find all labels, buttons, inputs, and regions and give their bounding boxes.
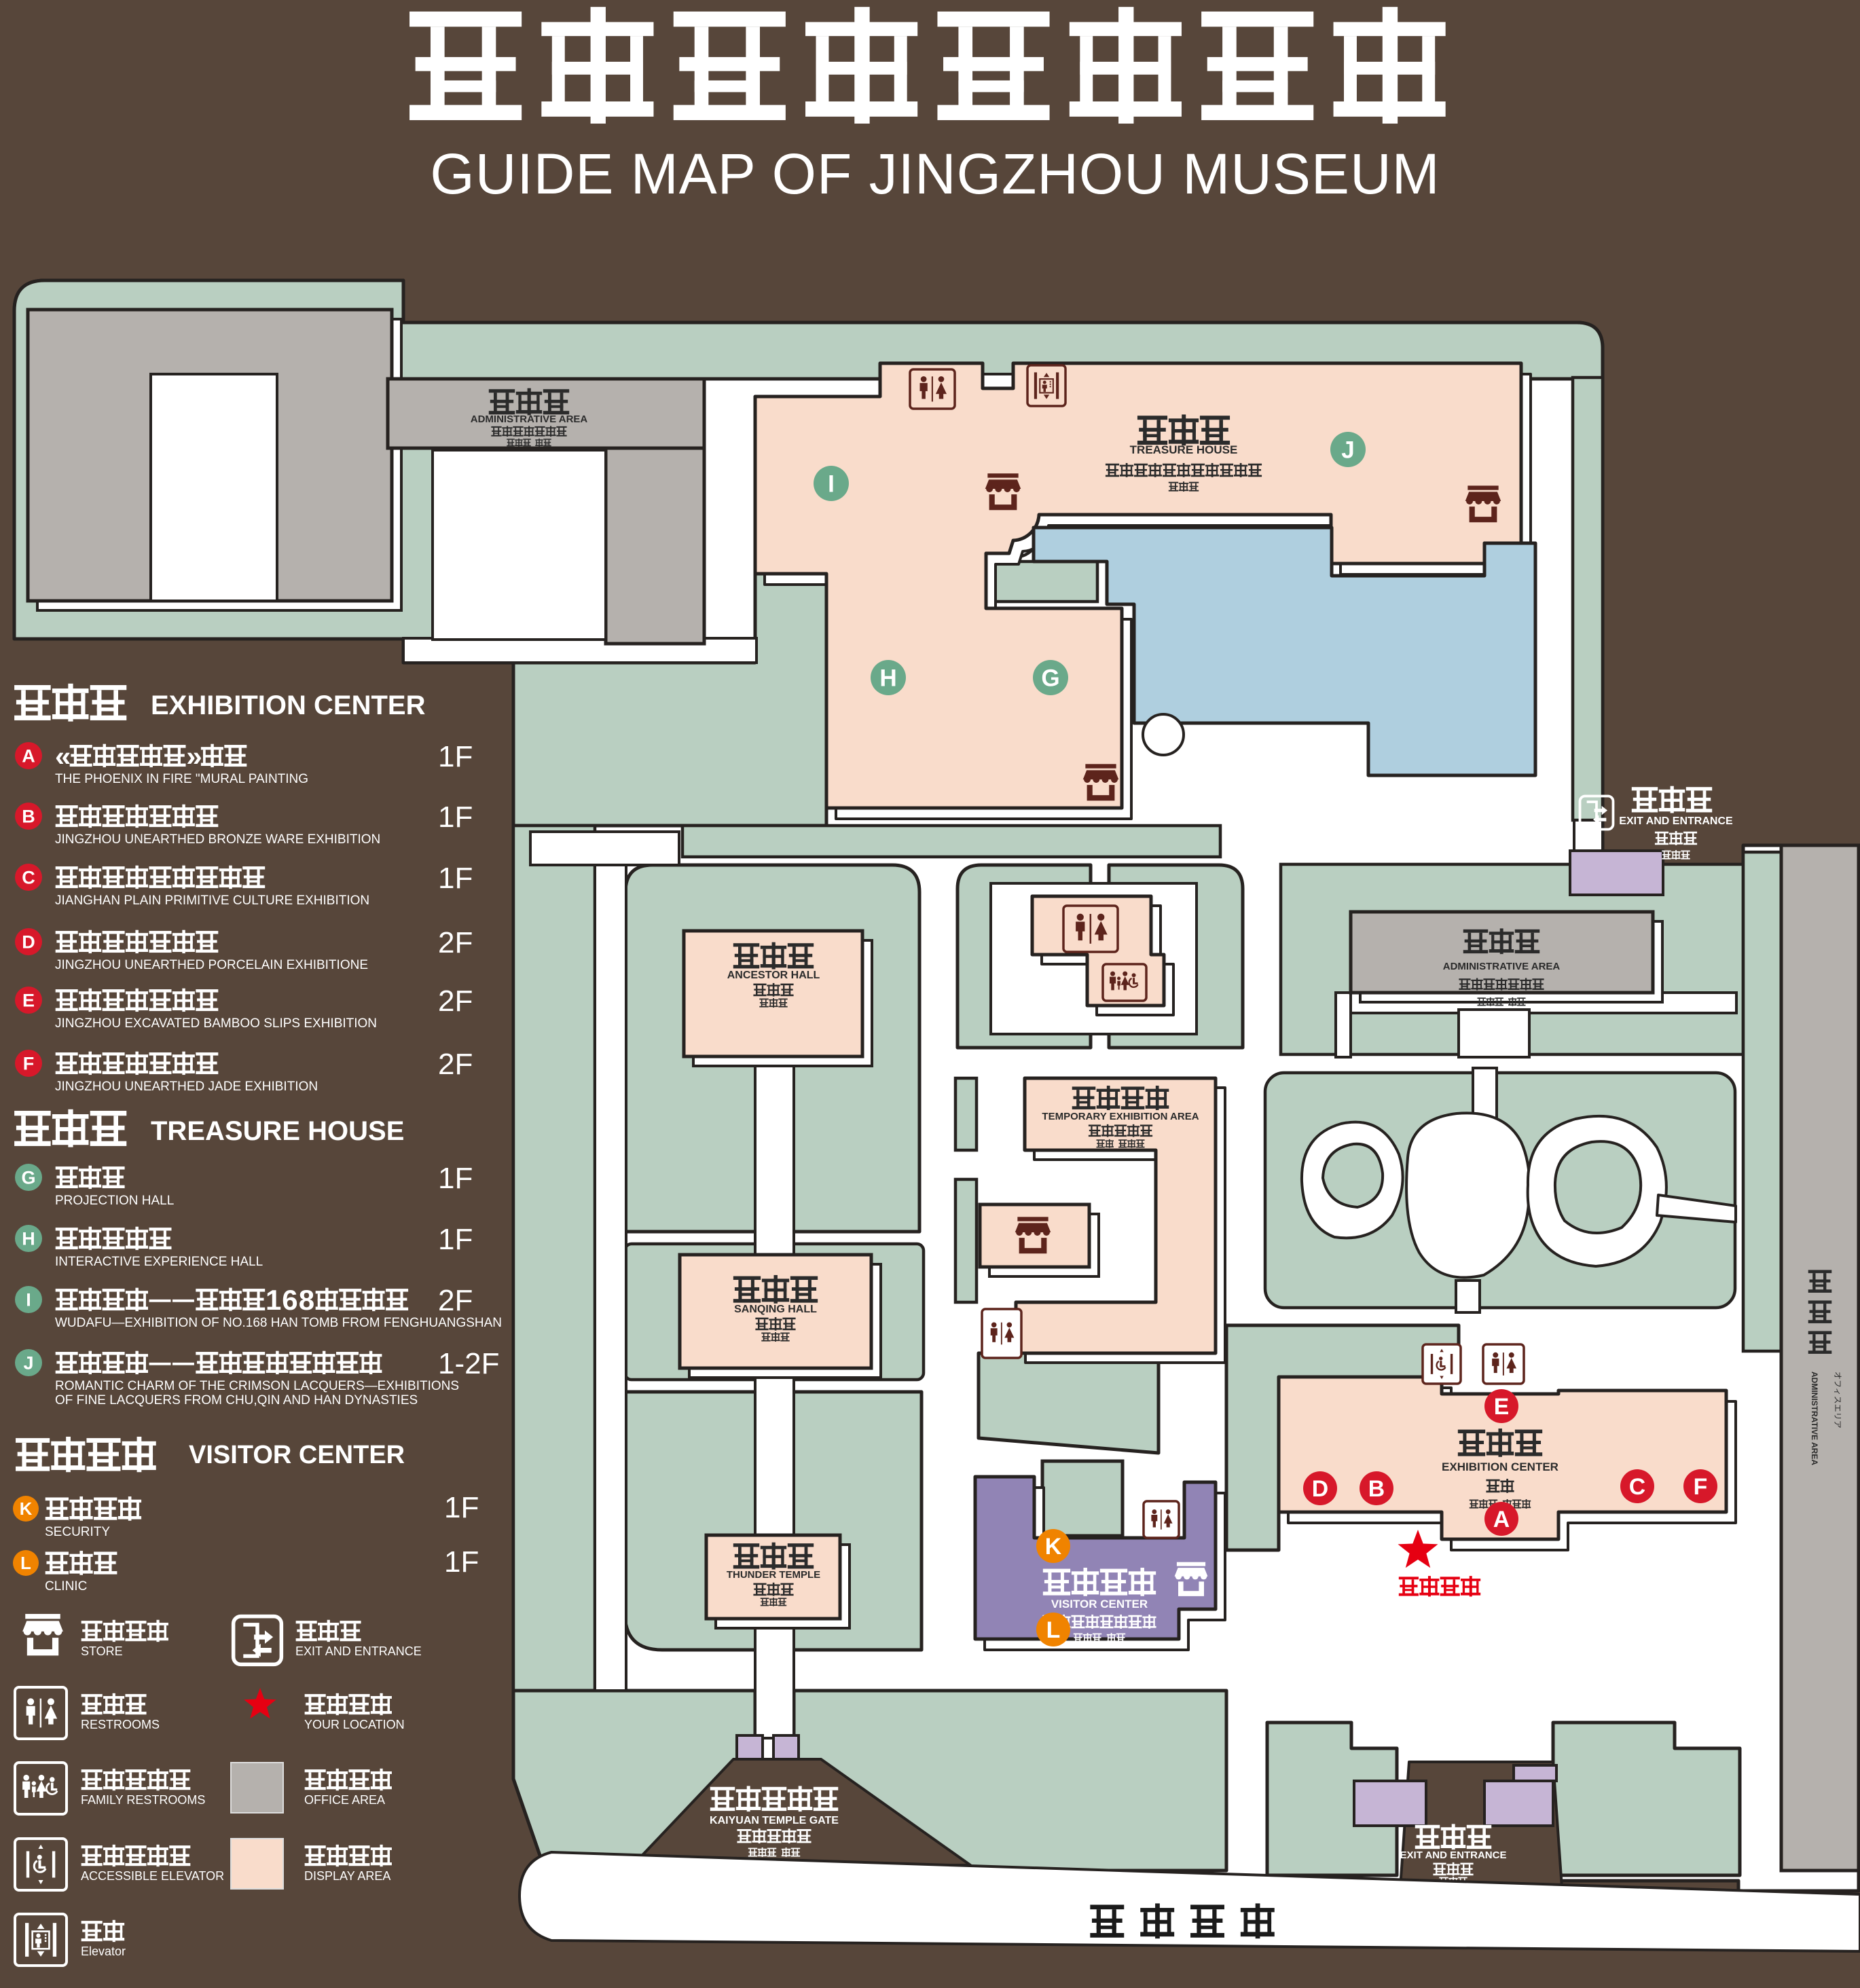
svg-text:C: C <box>22 868 35 888</box>
svg-text:JIANGHAN PLAIN PRIMITIVE CULTU: JIANGHAN PLAIN PRIMITIVE CULTURE EXHIBIT… <box>55 894 369 908</box>
svg-text:K: K <box>1045 1534 1062 1560</box>
svg-text:L: L <box>20 1554 31 1573</box>
svg-text:OF FINE LACQUERS FROM CHU,QIN: OF FINE LACQUERS FROM CHU,QIN AND HAN DY… <box>55 1393 418 1407</box>
svg-text:PROJECTION HALL: PROJECTION HALL <box>55 1194 174 1208</box>
svg-text:SECURITY: SECURITY <box>45 1525 110 1539</box>
svg-text:2F: 2F <box>438 1048 473 1081</box>
svg-text:D: D <box>22 932 35 953</box>
svg-text:JINGZHOU UNEARTHED JADE EXHIBI: JINGZHOU UNEARTHED JADE EXHIBITION <box>55 1080 318 1094</box>
svg-text:G: G <box>1041 665 1059 692</box>
svg-text:1F: 1F <box>444 1545 479 1579</box>
svg-text:VISITOR CENTER: VISITOR CENTER <box>189 1441 405 1469</box>
svg-text:GUIDE MAP OF JINGZHOU MUSEUM: GUIDE MAP OF JINGZHOU MUSEUM <box>430 142 1440 206</box>
svg-text:STORE: STORE <box>81 1644 123 1658</box>
svg-text:OFFICE AREA: OFFICE AREA <box>304 1793 385 1807</box>
svg-text:VISITOR CENTER: VISITOR CENTER <box>1051 1598 1148 1610</box>
svg-text:1F: 1F <box>438 862 473 895</box>
svg-text:JINGZHOU EXCAVATED BAMBOO SLIP: JINGZHOU EXCAVATED BAMBOO SLIPS EXHIBITI… <box>55 1016 377 1031</box>
svg-text:J: J <box>1341 437 1355 464</box>
svg-text:E: E <box>22 991 35 1011</box>
svg-text:1F: 1F <box>438 740 473 773</box>
svg-text:J: J <box>23 1353 33 1374</box>
svg-text:JINGZHOU UNEARTHED PORCELAIN E: JINGZHOU UNEARTHED PORCELAIN EXHIBITIONE <box>55 958 368 972</box>
svg-text:FAMILY RESTROOMS: FAMILY RESTROOMS <box>81 1793 205 1807</box>
svg-text:ADMINISTRATIVE AREA: ADMINISTRATIVE AREA <box>1810 1372 1819 1465</box>
svg-text:JINGZHOU UNEARTHED BRONZE WARE: JINGZHOU UNEARTHED BRONZE WARE EXHIBITIO… <box>55 832 380 847</box>
svg-text:6: 6 <box>282 1284 297 1316</box>
svg-text:ACCESSIBLE ELEVATOR: ACCESSIBLE ELEVATOR <box>81 1869 224 1883</box>
svg-text:1F: 1F <box>438 1162 473 1195</box>
svg-text:K: K <box>20 1500 33 1519</box>
svg-text:1F: 1F <box>444 1491 479 1524</box>
svg-text:G: G <box>21 1168 35 1188</box>
svg-text:WUDAFU—EXHIBITION OF NO.168 HA: WUDAFU—EXHIBITION OF NO.168 HAN TOMB FRO… <box>55 1316 502 1330</box>
svg-text:YOUR LOCATION: YOUR LOCATION <box>304 1718 405 1731</box>
svg-text:C: C <box>1629 1474 1645 1500</box>
svg-text:THE PHOENIX IN FIRE "MURAL PAI: THE PHOENIX IN FIRE "MURAL PAINTING <box>55 772 308 786</box>
svg-text:ANCESTOR HALL: ANCESTOR HALL <box>727 970 820 981</box>
svg-text:2F: 2F <box>438 926 473 959</box>
svg-text:B: B <box>1368 1476 1385 1502</box>
svg-text:H: H <box>22 1229 35 1249</box>
svg-text:H: H <box>879 665 896 692</box>
svg-text:TREASURE HOUSE: TREASURE HOUSE <box>1130 443 1238 456</box>
svg-text:I: I <box>828 471 835 498</box>
svg-text:ADMINISTRATIVE AREA: ADMINISTRATIVE AREA <box>471 413 588 425</box>
svg-text:A: A <box>1493 1507 1510 1532</box>
svg-text:INTERACTIVE EXPERIENCE HALL: INTERACTIVE EXPERIENCE HALL <box>55 1255 263 1269</box>
svg-text:»: » <box>186 740 202 772</box>
svg-text:RESTROOMS: RESTROOMS <box>81 1718 160 1731</box>
svg-text:CLINIC: CLINIC <box>45 1579 87 1594</box>
svg-text:TREASURE HOUSE: TREASURE HOUSE <box>151 1116 404 1146</box>
svg-text:ROMANTIC CHARM OF THE CRIMSON: ROMANTIC CHARM OF THE CRIMSON LACQUERS—E… <box>55 1379 459 1393</box>
svg-text:E: E <box>1494 1394 1510 1420</box>
svg-text:ADMINISTRATIVE AREA: ADMINISTRATIVE AREA <box>1443 961 1561 972</box>
svg-text:I: I <box>26 1290 31 1310</box>
svg-text:F: F <box>1694 1474 1708 1500</box>
svg-text:Elevator: Elevator <box>81 1945 126 1958</box>
svg-text:THUNDER TEMPLE: THUNDER TEMPLE <box>727 1569 820 1581</box>
svg-text:EXIT AND ENTRANCE: EXIT AND ENTRANCE <box>295 1644 422 1658</box>
svg-text:1F: 1F <box>438 800 473 834</box>
svg-text:A: A <box>22 746 35 767</box>
svg-text:EXIT AND ENTRANCE: EXIT AND ENTRANCE <box>1619 815 1733 827</box>
svg-text:«: « <box>55 740 71 772</box>
svg-text:8: 8 <box>299 1284 314 1316</box>
svg-text:D: D <box>1312 1476 1328 1502</box>
svg-text:EXIT AND ENTRANCE: EXIT AND ENTRANCE <box>1400 1849 1507 1861</box>
svg-text:TEMPORARY EXHIBITION AREA: TEMPORARY EXHIBITION AREA <box>1042 1111 1199 1122</box>
svg-text:2F: 2F <box>438 1284 473 1317</box>
svg-text:1-2F: 1-2F <box>438 1347 499 1380</box>
svg-text:EXHIBITION CENTER: EXHIBITION CENTER <box>151 691 426 720</box>
svg-text:1: 1 <box>266 1284 281 1316</box>
svg-text:SANQING HALL: SANQING HALL <box>734 1304 817 1315</box>
svg-text:EXHIBITION CENTER: EXHIBITION CENTER <box>1442 1460 1558 1473</box>
svg-text:オフィスエリア: オフィスエリア <box>1833 1372 1842 1429</box>
svg-text:DISPLAY AREA: DISPLAY AREA <box>304 1869 390 1883</box>
svg-text:2F: 2F <box>438 984 473 1018</box>
svg-text:L: L <box>1046 1617 1061 1643</box>
svg-text:KAIYUAN TEMPLE GATE: KAIYUAN TEMPLE GATE <box>710 1815 839 1826</box>
svg-text:B: B <box>22 807 35 827</box>
svg-text:F: F <box>23 1054 35 1074</box>
svg-text:1F: 1F <box>438 1223 473 1256</box>
